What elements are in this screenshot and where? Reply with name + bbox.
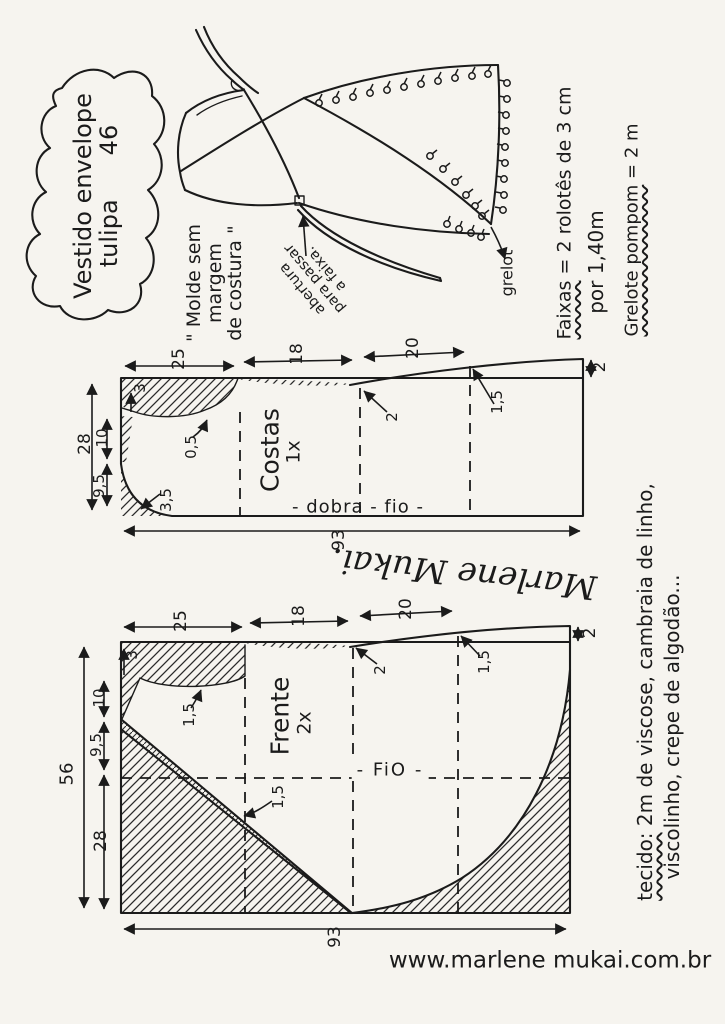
- frente-measure-1-5-hem: 1,5: [270, 785, 286, 809]
- costas-left-sliver-hatch: [121, 416, 133, 462]
- frente-piece: [84, 611, 578, 929]
- petal-lower-edge: [304, 98, 491, 224]
- costas-measure-28: 28: [76, 433, 94, 455]
- fabric-word: tecido:: [633, 832, 657, 900]
- website-url: www.marlene mukai.com.br: [389, 949, 711, 974]
- costas-measure-10: 10: [94, 428, 110, 447]
- grelote-word: Grelote pompom: [621, 185, 642, 337]
- grelot-label: grelot: [498, 250, 515, 297]
- faixas-note-line2: por 1,40m: [586, 210, 608, 314]
- frente-measure-28: 28: [92, 830, 110, 852]
- mold-note-line1: " Molde sem: [184, 224, 205, 342]
- title-line1: Vestido envelope: [71, 93, 97, 299]
- grelote-value: = 2 m: [621, 123, 642, 184]
- frente-measure-10: 10: [91, 688, 107, 707]
- costas-measure-25: 25: [170, 348, 188, 370]
- armhole: [186, 90, 244, 113]
- frente-measure-25: 25: [172, 610, 190, 632]
- costas-measure-0-5: 0,5: [183, 435, 199, 459]
- frente-measure-1-5-armhole: 1,5: [181, 703, 197, 727]
- faixas-word: Faixas: [554, 281, 576, 340]
- armhole-inner: [197, 96, 242, 115]
- frente-qty: 2x: [295, 711, 316, 734]
- sewing-pattern-sheet: Vestido envelope tulipa 46 " Molde sem m…: [0, 0, 725, 1024]
- frente-measure-93: 93: [326, 926, 344, 948]
- fabric-note-line2: viscolinho, crepe de algodão...: [662, 575, 684, 880]
- bodice-bottom: [185, 190, 297, 205]
- bodice-side: [178, 113, 186, 190]
- costas-measure-3-5: 3,5: [158, 488, 174, 512]
- wrap-edge-b: [181, 98, 304, 171]
- title-line2: tulipa: [97, 199, 123, 267]
- frente-measure-2-right: 2: [581, 628, 599, 639]
- mold-note-line3: de costura ": [225, 224, 246, 342]
- title-size: 46: [97, 125, 123, 156]
- frente-grain-label: - FiO -: [352, 760, 429, 779]
- frente-measure-20: 20: [397, 598, 415, 620]
- faixas-note: Faixas = 2 rolotês de 3 cm: [555, 87, 576, 340]
- frente-measure-1-5-side: 1,5: [476, 650, 492, 674]
- costas-measure-3: 3: [132, 383, 148, 393]
- costas-qty: 1x: [284, 440, 305, 463]
- mold-note-line2: margem: [205, 224, 226, 342]
- costas-name: Costas: [257, 408, 284, 492]
- costas-measure-1-5: 1,5: [489, 390, 505, 414]
- costas-measure-2-right: 2: [591, 362, 609, 373]
- faixas-value: = 2 rolotês de 3 cm: [554, 87, 576, 281]
- frente-name: Frente: [267, 677, 294, 756]
- costas-measure-9-5: 9,5: [91, 474, 107, 498]
- petal-top-edge: [304, 65, 498, 98]
- costas-measure-20: 20: [404, 337, 422, 359]
- frente-measure-3: 3: [124, 650, 140, 660]
- frente-top-sliver-hatch: [245, 643, 350, 649]
- costas-top-sliver-hatch: [238, 379, 352, 386]
- fabric-note-line1: tecido: 2m de viscose, cambraia de linho…: [635, 483, 657, 901]
- frente-measure-2-dart: 2: [372, 665, 388, 675]
- title-bubble-text: Vestido envelope tulipa 46: [71, 93, 123, 299]
- costas-measure-18: 18: [288, 343, 306, 365]
- mold-note: " Molde sem margem de costura ": [184, 224, 246, 342]
- grelote-note: Grelote pompom = 2 m: [622, 123, 641, 336]
- frente-measure-56: 56: [57, 763, 76, 786]
- costas-fold-grain-label: - dobra - fio -: [292, 497, 424, 516]
- fabric-value: 2m de viscose, cambraia de linho,: [633, 483, 657, 832]
- frente-measure-18: 18: [290, 605, 308, 627]
- costas-measure-2-dart: 2: [384, 412, 400, 422]
- shoulder-tie: [196, 30, 244, 90]
- frente-measure-9-5: 9,5: [88, 733, 104, 757]
